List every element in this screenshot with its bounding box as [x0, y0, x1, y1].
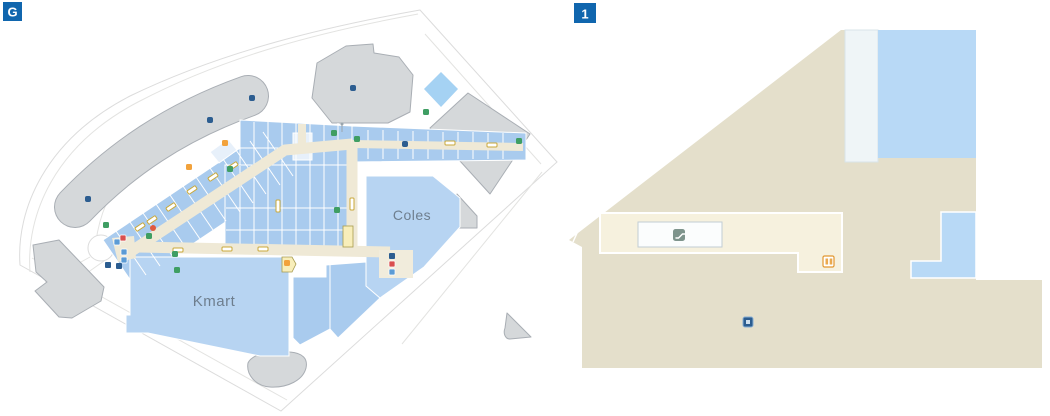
poi-navy-icon[interactable]: [743, 317, 753, 327]
mall-floor-maps: Kmart Coles G: [0, 0, 1050, 416]
walkway-area-southeast: [379, 250, 413, 278]
parking-dot-icon[interactable]: [350, 85, 356, 91]
amenity-red-icon[interactable]: [389, 261, 395, 267]
building-southeast-triangle: [504, 313, 531, 339]
parking-dot-icon[interactable]: [249, 95, 255, 101]
kmart-label: Kmart: [193, 293, 236, 310]
amenity-green-icon[interactable]: [334, 207, 340, 213]
svg-text:G: G: [7, 5, 17, 20]
level1-store-pale[interactable]: [845, 30, 878, 162]
floor-badge-level1[interactable]: 1: [574, 3, 596, 23]
amenity-blue-icon[interactable]: [121, 249, 127, 255]
poi-navy-icon[interactable]: [116, 263, 122, 269]
amenity-green-icon[interactable]: [354, 136, 360, 142]
amenity-orange-icon[interactable]: [284, 260, 290, 266]
poi-navy-icon[interactable]: [389, 253, 395, 259]
amenity-green-icon[interactable]: [146, 233, 152, 239]
escalator-block-icon[interactable]: [343, 226, 353, 247]
amenity-green-icon[interactable]: [174, 267, 180, 273]
amenity-green-icon[interactable]: [172, 251, 178, 257]
level1-store-blue-large[interactable]: [878, 30, 976, 158]
level1-floor-map: 1: [569, 3, 1042, 368]
amenity-green-icon[interactable]: [516, 138, 522, 144]
parking-dot-icon[interactable]: [402, 141, 408, 147]
amenity-orange-icon[interactable]: [186, 164, 192, 170]
amenity-blue-icon[interactable]: [389, 269, 395, 275]
svg-text:1: 1: [581, 7, 588, 22]
lift-icon[interactable]: [823, 256, 834, 267]
ground-floor-map: Kmart Coles G: [3, 2, 557, 411]
amenity-green-icon[interactable]: [331, 130, 337, 136]
southeast-entrance-icon-cluster: [389, 253, 395, 275]
poi-navy-icon[interactable]: [105, 262, 111, 268]
amenity-blue-icon[interactable]: [121, 257, 127, 263]
floor-badge-ground[interactable]: G: [3, 2, 22, 21]
amenity-red-icon[interactable]: [120, 235, 126, 241]
mall-map-stage: Kmart Coles G: [0, 0, 1050, 416]
amenity-red-dot-icon[interactable]: [150, 225, 156, 231]
escalator-icon[interactable]: [673, 229, 685, 241]
amenity-green-icon[interactable]: [423, 109, 429, 115]
amenity-orange-icon[interactable]: [222, 140, 228, 146]
amenity-green-icon[interactable]: [227, 166, 233, 172]
parking-dot-icon[interactable]: [207, 117, 213, 123]
amenity-green-icon[interactable]: [103, 222, 109, 228]
parking-dot-icon[interactable]: [85, 196, 91, 202]
amenity-blue-icon[interactable]: [114, 239, 120, 245]
coles-label: Coles: [393, 207, 431, 223]
